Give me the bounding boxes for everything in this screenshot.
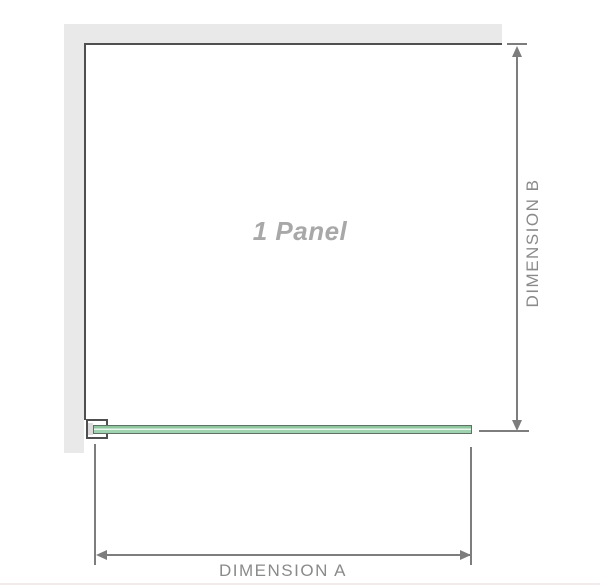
wall-inner-edge-left — [84, 43, 86, 420]
dimension-a-line — [100, 554, 470, 556]
arrow-right-icon — [460, 550, 471, 560]
bottom-divider — [0, 583, 600, 585]
arrow-down-icon — [512, 420, 522, 431]
panel-count-label: 1 Panel — [180, 216, 420, 247]
dimension-b-line — [516, 50, 518, 422]
wall-left — [64, 24, 84, 453]
dimension-b-tick-top — [507, 43, 527, 45]
dimension-a-extension-left — [94, 444, 96, 565]
dimension-a-label: DIMENSION A — [183, 561, 383, 581]
panel-dimension-diagram: 1 Panel DIMENSION B DIMENSION A — [0, 0, 600, 588]
dimension-a-extension-right — [470, 447, 472, 565]
wall-top — [64, 24, 502, 44]
arrow-up-icon — [512, 46, 522, 57]
arrow-left-icon — [96, 550, 107, 560]
dimension-b-label: DIMENSION B — [523, 178, 543, 308]
wall-inner-edge-top — [84, 43, 502, 45]
glass-panel — [93, 425, 472, 434]
